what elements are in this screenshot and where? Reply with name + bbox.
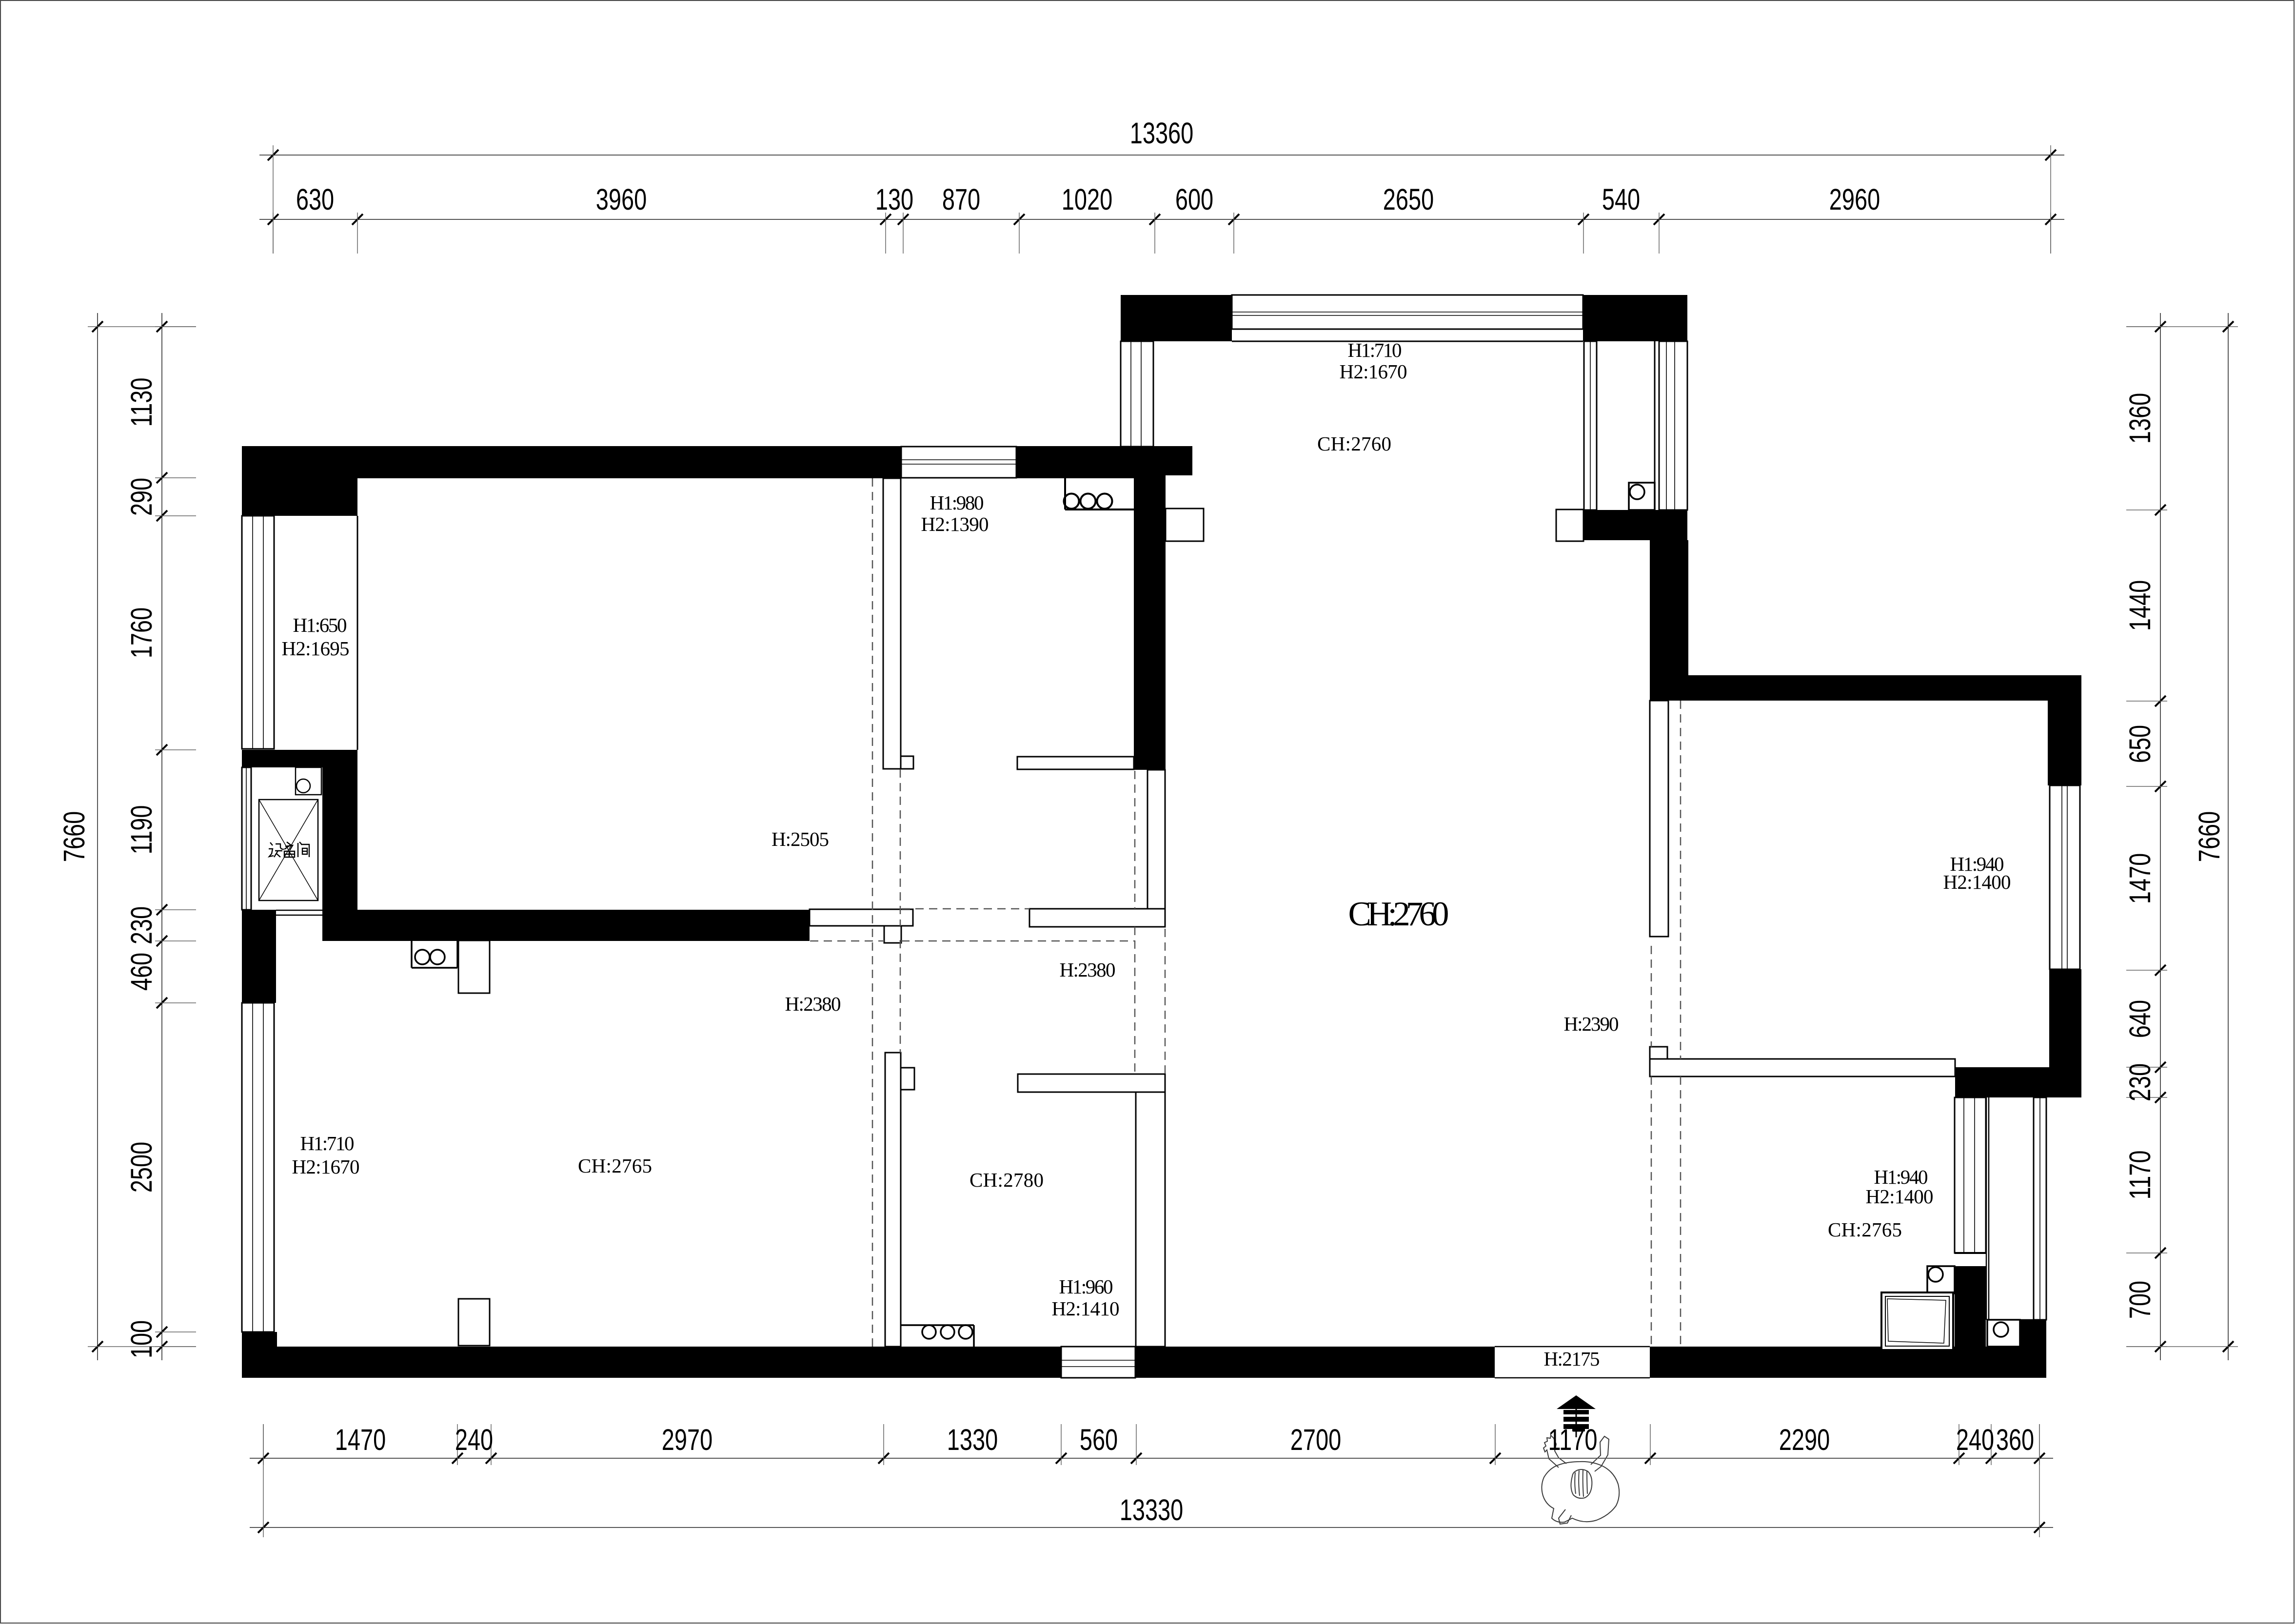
svg-text:700: 700 [2123,1281,2157,1319]
svg-text:1020: 1020 [1062,183,1112,216]
svg-text:H2:1410: H2:1410 [1052,1297,1120,1320]
svg-text:H2:1670: H2:1670 [292,1155,360,1178]
svg-text:H2:1390: H2:1390 [921,513,989,535]
svg-text:7660: 7660 [2193,811,2226,862]
svg-text:1470: 1470 [335,1423,386,1456]
svg-text:1760: 1760 [125,607,158,658]
svg-text:600: 600 [1175,183,1213,216]
svg-text:870: 870 [942,183,980,216]
svg-text:460: 460 [125,953,158,991]
svg-text:1170: 1170 [2123,1151,2157,1200]
svg-text:2970: 2970 [662,1423,712,1456]
svg-text:2500: 2500 [125,1142,158,1193]
svg-text:CH:2760: CH:2760 [1348,895,1449,933]
svg-text:650: 650 [2123,725,2157,763]
svg-text:H2:1695: H2:1695 [282,637,350,660]
svg-text:230: 230 [2123,1063,2157,1101]
svg-text:3960: 3960 [596,183,647,216]
svg-text:1330: 1330 [947,1423,998,1456]
svg-text:2960: 2960 [1829,183,1880,216]
svg-text:13360: 13360 [1130,117,1194,150]
svg-text:1470: 1470 [2123,853,2157,904]
svg-text:H:2380: H:2380 [785,993,841,1015]
svg-text:1440: 1440 [2123,580,2157,631]
svg-text:230: 230 [125,906,158,944]
svg-text:H2:1670: H2:1670 [1340,360,1407,383]
svg-text:2290: 2290 [1779,1423,1830,1456]
svg-text:H1:650: H1:650 [293,614,347,636]
svg-text:CH:2765: CH:2765 [578,1154,652,1177]
svg-text:290: 290 [125,478,158,516]
svg-text:H:2505: H:2505 [772,828,829,850]
svg-text:1170: 1170 [1548,1423,1598,1456]
svg-text:2700: 2700 [1290,1423,1341,1456]
svg-text:H:2380: H:2380 [1060,959,1116,981]
svg-text:7660: 7660 [58,811,91,862]
svg-text:1360: 1360 [2123,393,2157,444]
svg-text:1130: 1130 [125,378,158,427]
svg-text:H1:710: H1:710 [300,1132,355,1154]
svg-text:H2:1400: H2:1400 [1866,1185,1934,1208]
svg-text:H:2175: H:2175 [1544,1348,1600,1370]
svg-text:H1:960: H1:960 [1059,1275,1113,1298]
svg-text:630: 630 [296,183,334,216]
svg-text:360: 360 [1996,1423,2034,1456]
svg-text:H1:710: H1:710 [1348,339,1402,361]
svg-text:1190: 1190 [125,805,158,855]
svg-text:560: 560 [1080,1423,1118,1456]
svg-text:H:2390: H:2390 [1564,1013,1619,1035]
svg-text:CH:2765: CH:2765 [1828,1218,1902,1241]
svg-text:CH:2780: CH:2780 [969,1169,1044,1191]
svg-text:CH:2760: CH:2760 [1317,432,1391,455]
svg-text:540: 540 [1602,183,1640,216]
svg-text:240: 240 [455,1423,493,1456]
svg-text:100: 100 [125,1320,158,1358]
svg-text:H1:980: H1:980 [930,491,984,514]
svg-text:13330: 13330 [1120,1493,1184,1526]
svg-text:H2:1400: H2:1400 [1943,871,2011,893]
svg-text:640: 640 [2123,1000,2157,1038]
svg-text:2650: 2650 [1383,183,1434,216]
svg-text:130: 130 [875,183,913,216]
svg-text:240: 240 [1956,1423,1994,1456]
